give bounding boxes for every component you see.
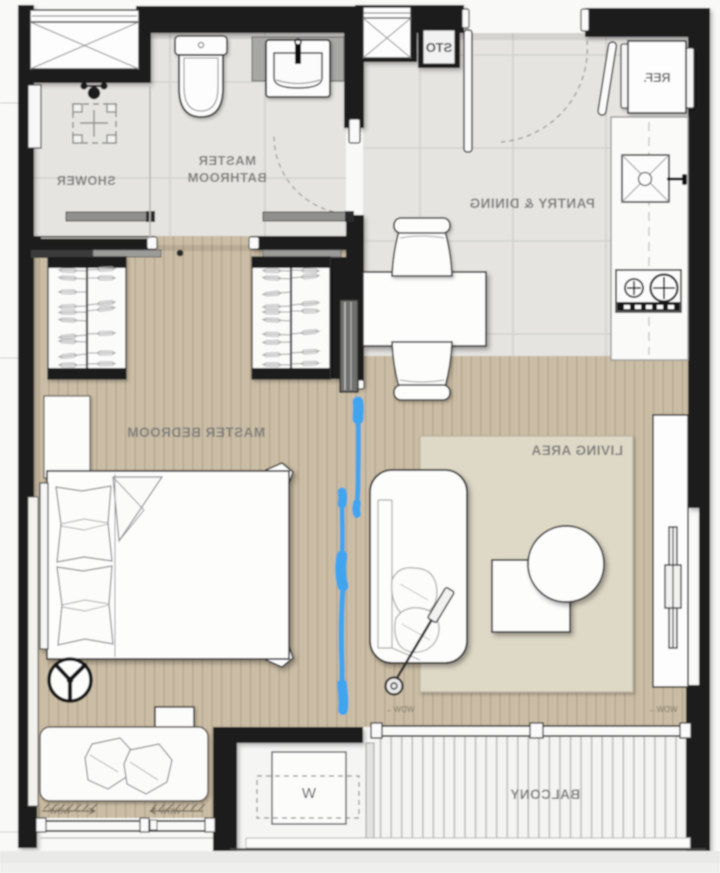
svg-text:WDW: WDW xyxy=(49,807,70,816)
svg-text:LIVING AREA: LIVING AREA xyxy=(531,443,623,458)
svg-text:STO: STO xyxy=(426,40,453,55)
svg-text:BALCONY: BALCONY xyxy=(510,787,580,802)
svg-text:WDW→: WDW→ xyxy=(386,705,415,714)
svg-text:PANTRY & DINING: PANTRY & DINING xyxy=(469,196,595,211)
svg-text:MASTER: MASTER xyxy=(198,153,256,168)
svg-text:REF.: REF. xyxy=(643,71,670,85)
svg-text:SHOWER: SHOWER xyxy=(56,174,115,188)
svg-text:WDW→: WDW→ xyxy=(649,705,678,714)
svg-text:W: W xyxy=(302,785,317,802)
svg-text:BATHROOM: BATHROOM xyxy=(187,170,267,185)
svg-text:MASTER BEDROOM: MASTER BEDROOM xyxy=(127,425,265,440)
svg-text:WDW: WDW xyxy=(159,807,180,816)
